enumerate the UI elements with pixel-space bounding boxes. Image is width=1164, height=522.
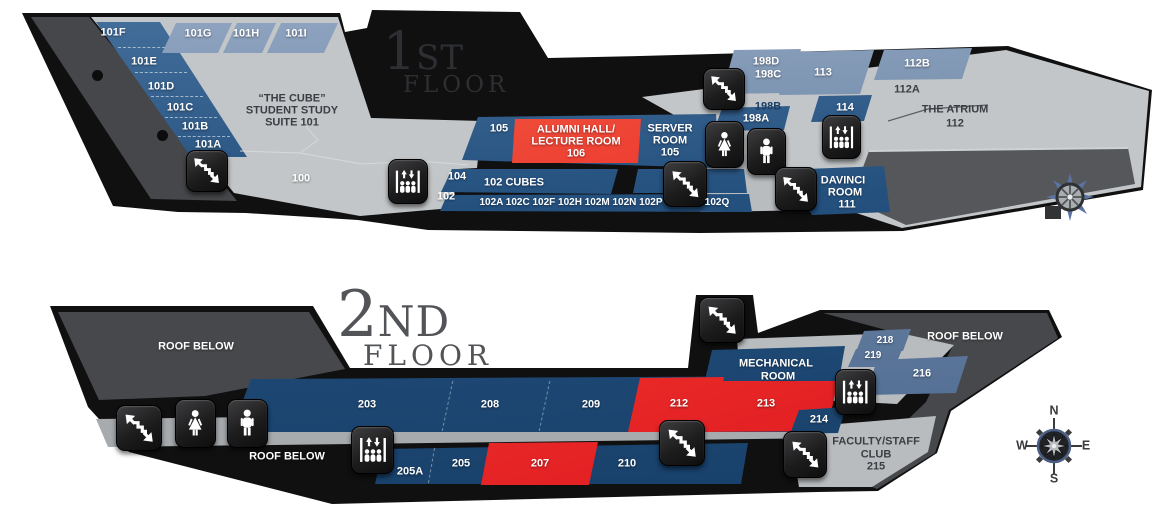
cube-suite-label: SUITE 101 bbox=[265, 117, 319, 130]
room-112a-label: 112A bbox=[894, 84, 920, 97]
stairs-glyph bbox=[789, 437, 822, 472]
faculty-club-label: FACULTY/STAFF bbox=[832, 436, 920, 449]
room-113-label: 113 bbox=[814, 67, 832, 80]
room-divider bbox=[118, 47, 170, 48]
room-101f-label: 101F bbox=[100, 27, 125, 40]
atrium-label: 112 bbox=[946, 118, 964, 131]
stairs-glyph bbox=[705, 303, 739, 337]
room-divider bbox=[151, 96, 203, 97]
elevator-glyph bbox=[357, 432, 389, 468]
atrium-label: THE ATRIUM bbox=[922, 104, 989, 117]
compass-east-label: E bbox=[1082, 439, 1090, 454]
room-114-label: 114 bbox=[836, 102, 854, 115]
room-divider bbox=[178, 136, 230, 137]
room-101d-label: 101D bbox=[148, 81, 174, 94]
room-102-label: 102 bbox=[437, 191, 455, 204]
stairs-glyph bbox=[708, 73, 739, 104]
room-214-label: 214 bbox=[810, 414, 828, 427]
woman-glyph bbox=[180, 405, 210, 442]
man-glyph bbox=[232, 405, 262, 442]
faculty-club-label: 215 bbox=[867, 461, 885, 474]
floor-plan: 1ST FLOOR 101F 101E 101D 101C 101B 101A … bbox=[0, 0, 1164, 522]
floor1-title-word: FLOOR bbox=[403, 76, 509, 96]
room-101g-label: 101G bbox=[185, 28, 212, 41]
elevator-icon bbox=[835, 369, 876, 415]
compass-west-label: W bbox=[1016, 439, 1028, 454]
stairs-icon bbox=[659, 420, 705, 466]
room-100-label: 100 bbox=[292, 173, 310, 186]
room-210-label: 210 bbox=[618, 458, 636, 471]
room-101c-label: 101C bbox=[167, 102, 193, 115]
restroom-women-icon bbox=[175, 399, 216, 448]
floor2-title-word: FLOOR bbox=[363, 344, 493, 368]
restroom-women-icon bbox=[705, 121, 744, 168]
room-101h-label: 101H bbox=[233, 28, 259, 41]
room-divider bbox=[135, 72, 187, 73]
room-207-label: 207 bbox=[531, 458, 549, 471]
stairs-glyph bbox=[122, 411, 156, 445]
stairs-icon bbox=[775, 167, 817, 211]
room-101a-label: 101A bbox=[195, 139, 221, 152]
mechanical-room-label: MECHANICAL bbox=[739, 358, 813, 371]
door-marker bbox=[157, 130, 168, 141]
elevator-icon bbox=[822, 115, 861, 159]
stairs-icon bbox=[663, 161, 707, 207]
restroom-men-icon bbox=[227, 399, 268, 448]
stairs-icon bbox=[783, 431, 827, 478]
room-102-row-label: 102A 102C 102F 102H 102M 102N 102P bbox=[479, 197, 662, 209]
room-105-label: 105 bbox=[490, 123, 508, 136]
stairs-glyph bbox=[780, 173, 811, 206]
elevator-glyph bbox=[827, 121, 856, 154]
room-208-label: 208 bbox=[481, 399, 499, 412]
room-101e-label: 101E bbox=[131, 56, 157, 69]
room-209-label: 209 bbox=[582, 399, 600, 412]
elevator-glyph bbox=[840, 375, 870, 409]
floor2-title: 2ND FLOOR bbox=[337, 288, 493, 368]
server-room-label: 105 bbox=[661, 147, 679, 160]
stairs-glyph bbox=[665, 426, 699, 460]
room-101b-label: 101B bbox=[182, 121, 208, 134]
room-104-label: 104 bbox=[448, 171, 466, 184]
room-198a-label: 198A bbox=[743, 113, 769, 126]
room-198d-label: 198D bbox=[753, 56, 779, 69]
roof-below-right-label: ROOF BELOW bbox=[927, 331, 1003, 344]
room-203-label: 203 bbox=[358, 399, 376, 412]
roof-below-left-label: ROOF BELOW bbox=[158, 341, 234, 354]
room-219-label: 219 bbox=[865, 350, 882, 362]
stairs-glyph bbox=[669, 167, 702, 201]
roof-below-bottom-label: ROOF BELOW bbox=[249, 451, 325, 464]
elevator-icon bbox=[388, 159, 428, 204]
room-205-label: 205 bbox=[452, 458, 470, 471]
room-112b-label: 112B bbox=[904, 58, 930, 71]
compass-north-label: N bbox=[1049, 404, 1058, 419]
stairs-icon bbox=[116, 405, 162, 451]
room-216-label: 216 bbox=[913, 368, 931, 381]
davinci-room-label: 111 bbox=[838, 199, 855, 212]
room-213-label: 213 bbox=[757, 398, 775, 411]
door-marker bbox=[92, 70, 103, 81]
mechanical-room-label: ROOM bbox=[761, 371, 795, 384]
woman-glyph bbox=[710, 127, 739, 162]
room-212-label: 212 bbox=[670, 398, 688, 411]
room-218-label: 218 bbox=[877, 335, 894, 347]
elevator-icon bbox=[351, 426, 394, 474]
stairs-icon bbox=[703, 68, 745, 110]
elevator-glyph bbox=[393, 165, 423, 199]
man-glyph bbox=[752, 134, 781, 169]
floor1-title: 1ST FLOOR bbox=[383, 30, 509, 96]
map-fragment bbox=[1045, 206, 1061, 219]
stairs-glyph bbox=[191, 155, 222, 186]
room-102q-label: 102Q bbox=[705, 197, 729, 209]
room-205a-label: 205A bbox=[397, 466, 423, 479]
compass-south-label: S bbox=[1050, 472, 1058, 487]
room-101i-label: 101I bbox=[285, 28, 306, 41]
stairs-icon bbox=[186, 150, 228, 192]
alumni-hall-label: 106 bbox=[567, 148, 585, 161]
room-102cubes-label: 102 CUBES bbox=[484, 177, 544, 190]
room-divider bbox=[165, 117, 217, 118]
stairs-icon bbox=[699, 297, 745, 343]
room-198c-label: 198C bbox=[755, 69, 781, 82]
